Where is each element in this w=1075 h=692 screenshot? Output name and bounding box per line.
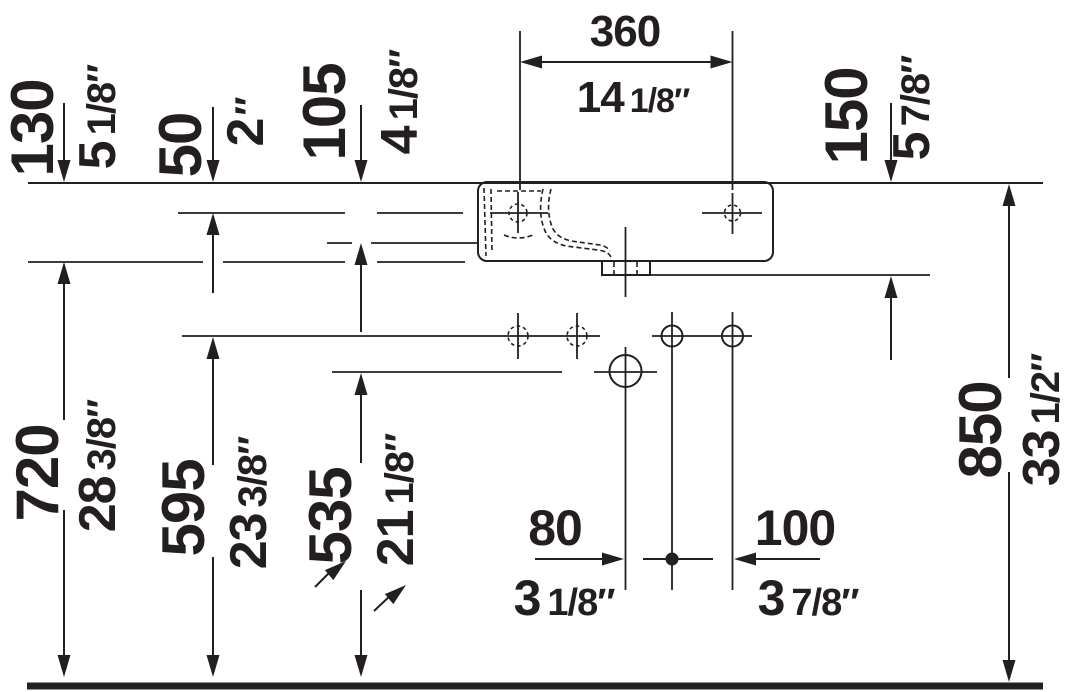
dim-360-inch-whole: 14 xyxy=(577,73,625,122)
dim-850-inch-whole: 33 xyxy=(1013,430,1071,486)
dim-100-inch-whole: 3 xyxy=(758,570,785,626)
dim-105-inch-label: 41/8″ xyxy=(371,49,429,155)
dim-50-inch-frac: ″ xyxy=(228,97,272,116)
bowl-back-wall-dashed-outer xyxy=(484,188,486,256)
dim-720-floor-arrow xyxy=(58,655,71,677)
dim-100-arrow xyxy=(734,553,756,566)
dim-130-inch-frac: 1/8″ xyxy=(80,64,124,136)
centerlines-group xyxy=(626,227,733,590)
dim-50-mm-label: 50 xyxy=(147,113,214,178)
dim-850-mm-label: 850 xyxy=(947,381,1014,478)
dim-150-mm-label: 150 xyxy=(813,67,880,164)
dim-130-inch-whole: 5 xyxy=(69,141,127,169)
dim-150-upper-arrow xyxy=(885,160,898,182)
dim-360-mm-label: 360 xyxy=(590,7,660,56)
dim-850: 850 331/2″ xyxy=(947,184,1071,682)
dim-105-upper-arrow xyxy=(355,160,368,182)
dim-720: 720 283/8″ xyxy=(4,283,127,677)
dim-130-mm-label: 130 xyxy=(0,79,66,176)
bowl-profile-dashed-inner xyxy=(549,189,610,251)
dim-50-inch-label: 2″ xyxy=(217,97,275,147)
dim-535-mm-label: 535 xyxy=(297,467,364,564)
dim-535-inch-whole: 21 xyxy=(367,510,425,566)
dim-150-lower-arrow xyxy=(885,276,898,298)
dim-595-inch-frac: 3/8″ xyxy=(231,436,275,508)
dim-720-inch-label: 283/8″ xyxy=(69,399,127,532)
dim-130: 130 51/8″ xyxy=(0,64,127,284)
dim-130-lower-arrow xyxy=(58,262,71,284)
dim-360-inch-label: 141/8″ xyxy=(577,73,690,122)
dim-535-floor-arrow xyxy=(355,655,368,677)
dim-850-inch-label: 331/2″ xyxy=(1013,353,1071,486)
dim-100-inch-frac: 7/8″ xyxy=(791,582,859,624)
dim-80-mm-label: 80 xyxy=(528,500,582,556)
dim-105-mm-label: 105 xyxy=(291,63,358,160)
dim-100-inch-label: 37/8″ xyxy=(758,570,860,626)
dim-130-inch-label: 51/8″ xyxy=(69,64,127,170)
dim-50-lower-arrow xyxy=(207,213,220,235)
dim-80-arrow xyxy=(602,553,624,566)
dim-595-floor-arrow xyxy=(207,655,220,677)
dim-850-inch-frac: 1/2″ xyxy=(1024,353,1068,425)
dim-535-top-arrow xyxy=(355,373,368,395)
dim-105-inch-whole: 4 xyxy=(371,125,429,154)
dim-80-inch-whole: 3 xyxy=(514,570,541,626)
basin-technical-drawing: 360 141/8″ 130 51/8″ 50 2″ 105 41/8″ 150… xyxy=(0,0,1075,692)
dim-360-inch-frac: 1/8″ xyxy=(630,82,690,120)
dim-595-inch-label: 233/8″ xyxy=(220,436,278,569)
dim-105-inch-frac: 1/8″ xyxy=(382,49,426,121)
dim-535-inch-frac: 1/8″ xyxy=(378,433,422,505)
dim-535-inch-label: 211/8″ xyxy=(367,433,425,566)
dim-850-top-arrow xyxy=(1003,184,1016,206)
dim-360: 360 141/8″ xyxy=(520,7,733,190)
dim-595: 595 233/8″ xyxy=(150,337,278,677)
dim-50-inch-whole: 2 xyxy=(217,119,275,147)
dim-105-lower-arrow xyxy=(355,243,368,265)
dim-150-inch-frac: 7/8″ xyxy=(894,55,938,127)
dim-595-mm-label: 595 xyxy=(150,459,217,556)
dim-100-mm-label: 100 xyxy=(755,500,835,556)
dim-720-mm-label: 720 xyxy=(4,424,71,521)
dim-535-inch-leader-arrow xyxy=(385,585,406,604)
dim-595-top-arrow xyxy=(207,337,220,359)
front-elevation-view: 360 141/8″ 130 51/8″ 50 2″ 105 41/8″ 150… xyxy=(0,0,1075,692)
dim-105: 105 41/8″ xyxy=(291,49,429,332)
dim-360-arrow-right xyxy=(711,56,733,69)
dim-595-inch-whole: 23 xyxy=(220,513,278,569)
dim-360-arrow-left xyxy=(520,56,542,69)
dim-150: 150 57/8″ xyxy=(813,55,941,360)
dim-850-floor-arrow xyxy=(1003,660,1016,682)
dim-50: 50 2″ xyxy=(147,97,275,293)
dim-80-inch-label: 31/8″ xyxy=(514,570,616,626)
dim-150-inch-whole: 5 xyxy=(883,132,941,160)
dim-720-inch-frac: 3/8″ xyxy=(80,399,124,471)
dim-720-inch-whole: 28 xyxy=(69,476,127,532)
tap-platform-dashed-underside xyxy=(504,235,533,238)
dim-80-100: 80 31/8″ 100 37/8″ xyxy=(514,500,860,626)
bowl-back-wall-dashed-inner xyxy=(491,189,492,253)
dim-80-inch-frac: 1/8″ xyxy=(547,582,615,624)
dim-535: 535 211/8″ xyxy=(297,373,425,677)
